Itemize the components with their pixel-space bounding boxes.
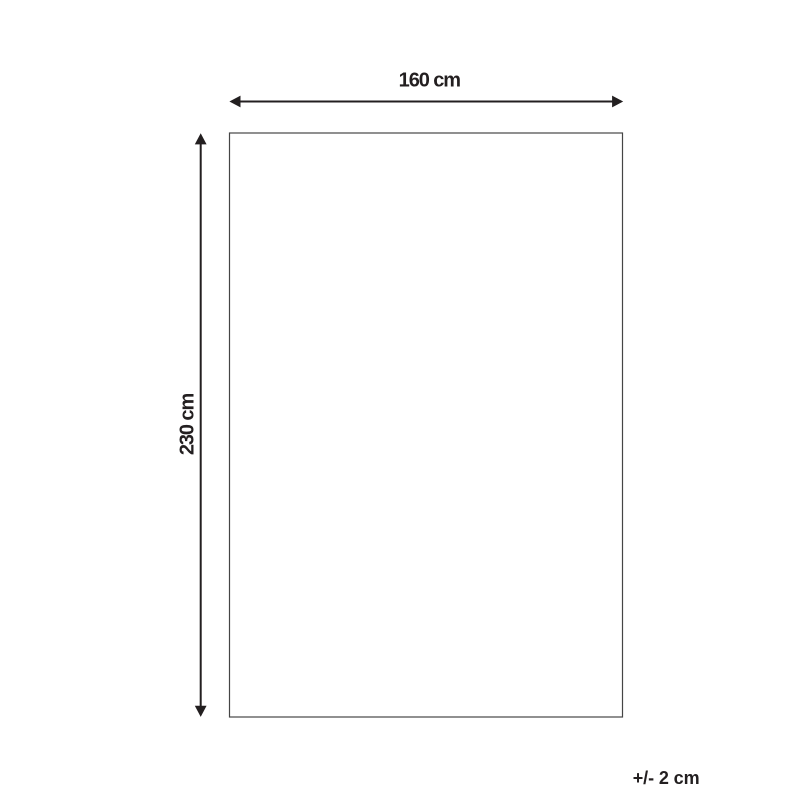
svg-text:160 cm: 160 cm: [399, 69, 461, 91]
svg-text:+/- 2 cm: +/- 2 cm: [633, 768, 700, 788]
svg-text:230 cm: 230 cm: [176, 394, 198, 456]
